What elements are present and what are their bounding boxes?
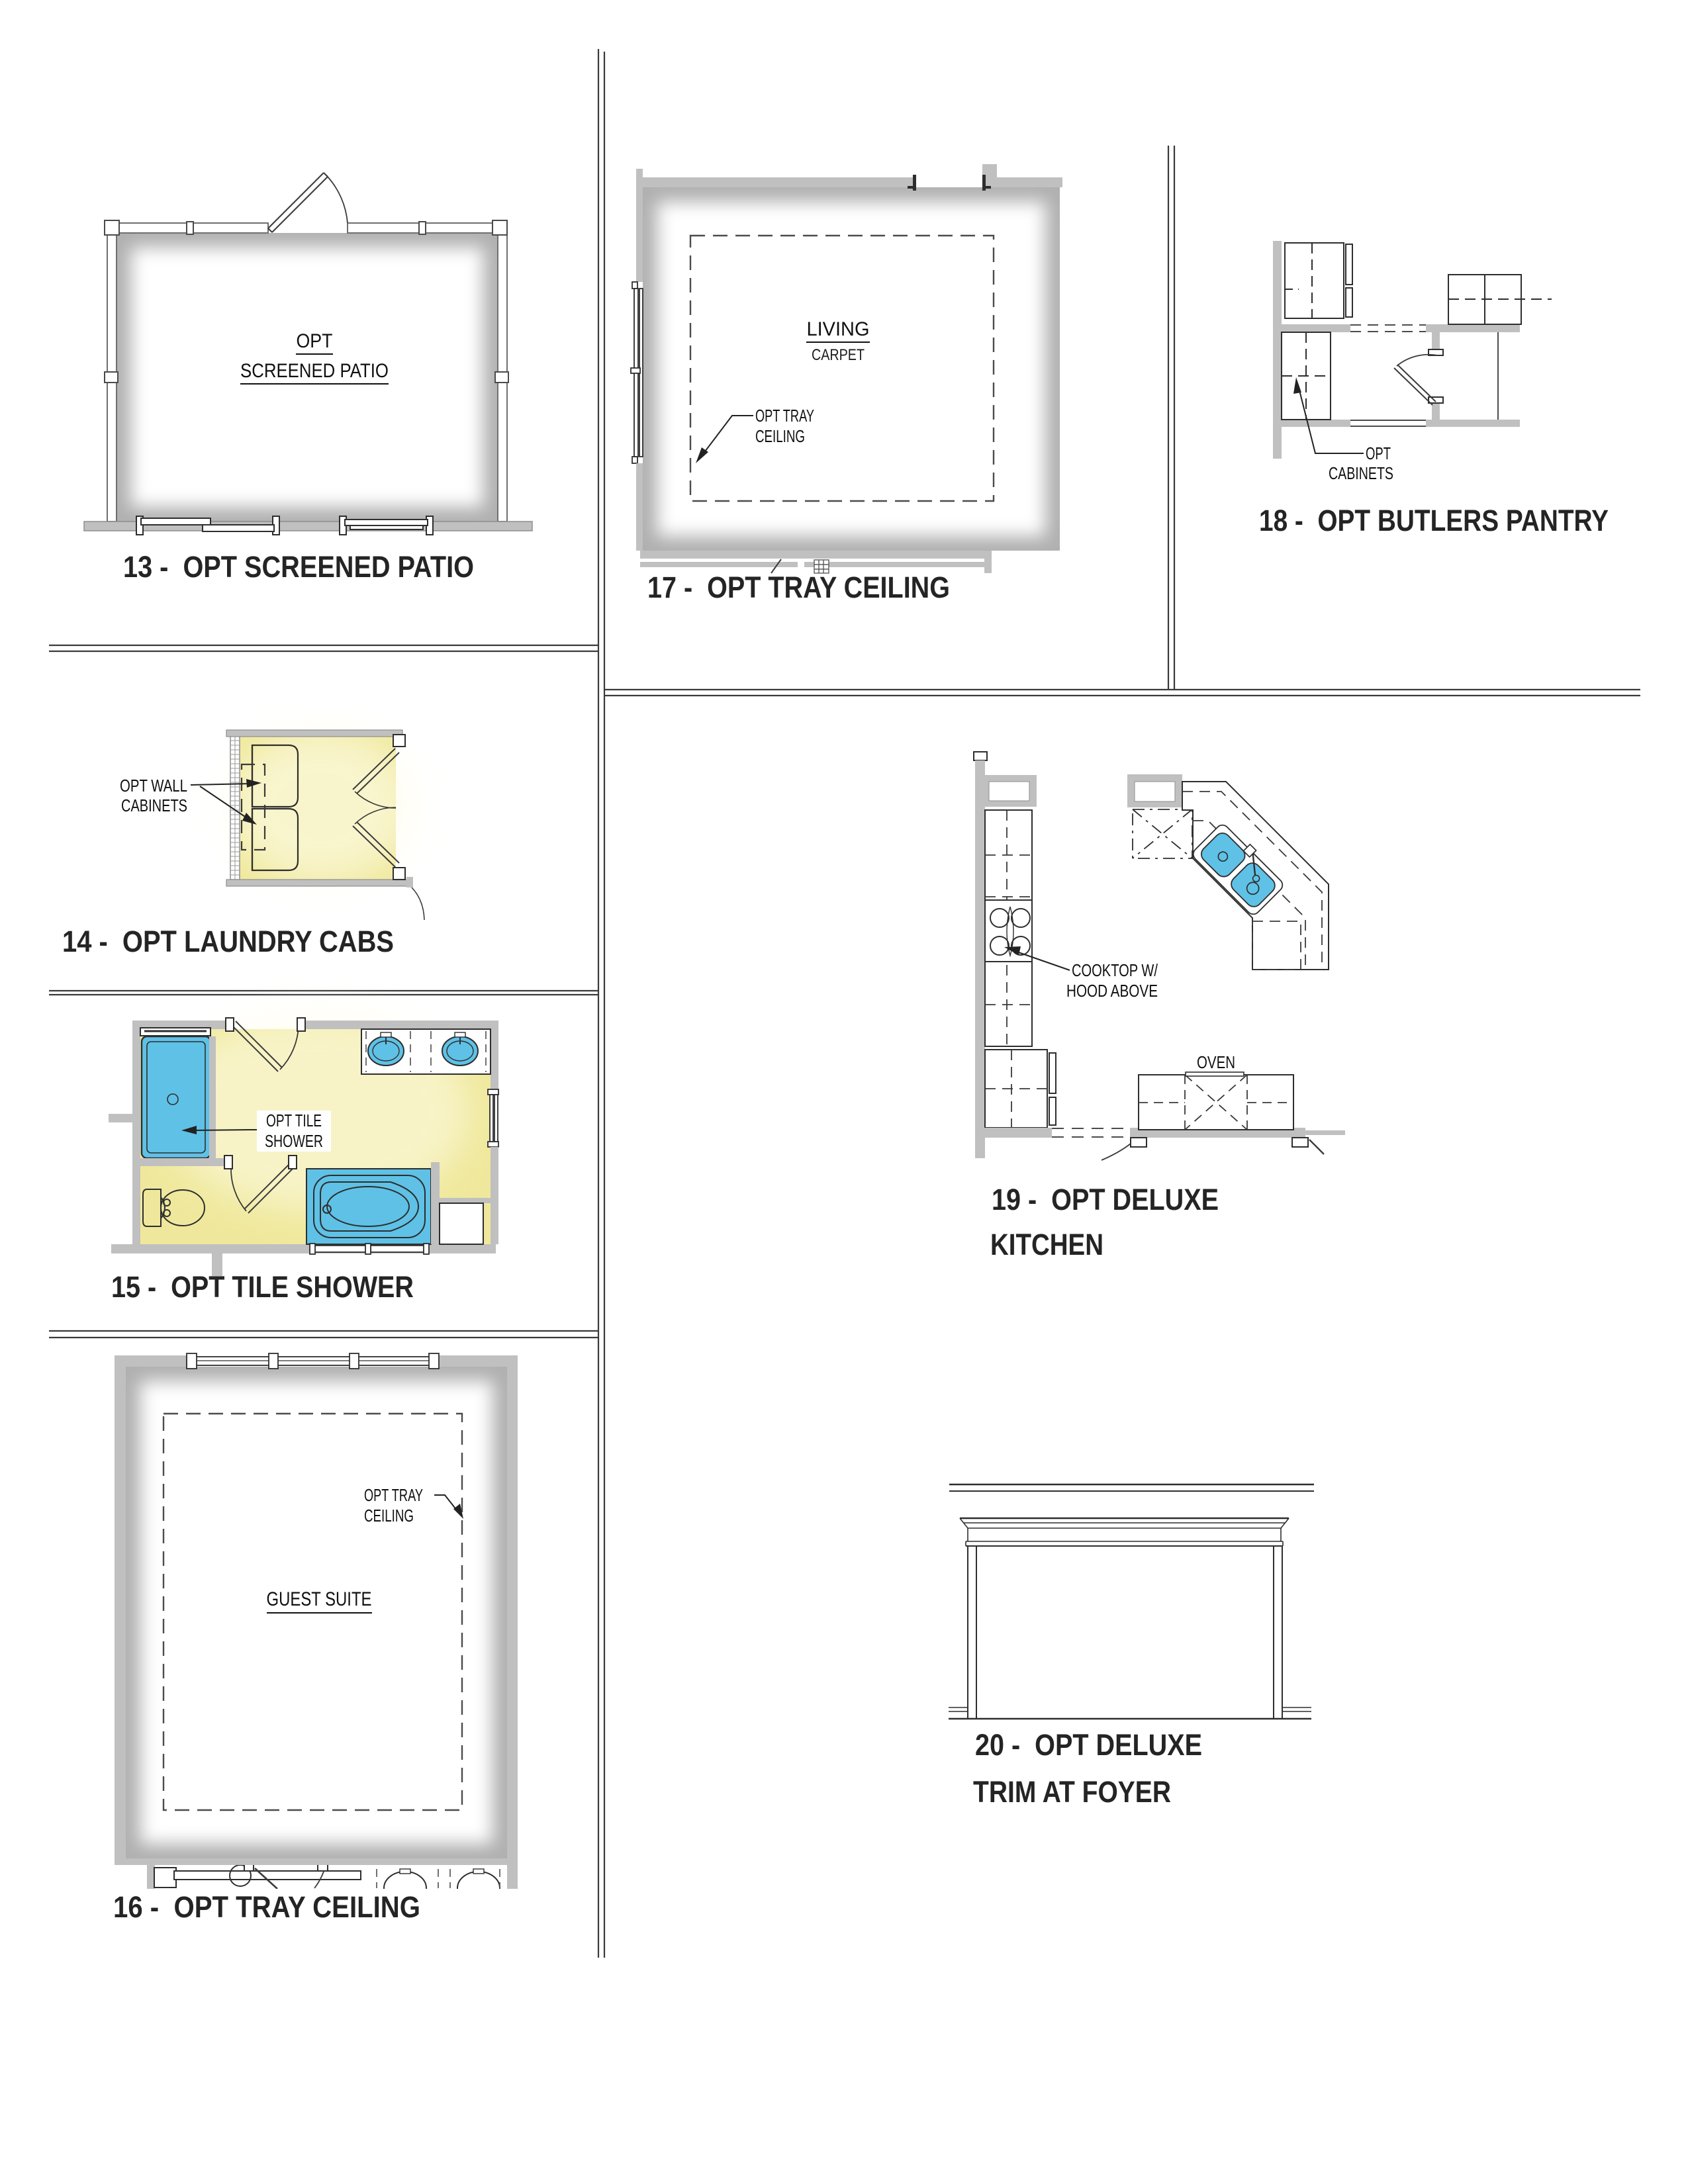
svg-text:OPT: OPT [1366,443,1391,463]
svg-text:OPT: OPT [297,330,333,352]
svg-text:OPT TILE: OPT TILE [266,1111,322,1130]
svg-text:LIVING: LIVING [807,318,870,340]
svg-text:CARPET: CARPET [812,346,865,364]
svg-text:OPT TRAY: OPT TRAY [755,406,814,426]
svg-text:13 - OPT SCREENED PATIO: 13 - OPT SCREENED PATIO [123,550,474,584]
svg-text:15 - OPT TILE SHOWER: 15 - OPT TILE SHOWER [111,1270,414,1304]
svg-text:SHOWER: SHOWER [265,1131,323,1151]
svg-text:CABINETS: CABINETS [121,796,187,815]
svg-text:CABINETS: CABINETS [1329,463,1393,483]
svg-text:OPT TRAY: OPT TRAY [364,1485,423,1505]
svg-text:CEILING: CEILING [364,1506,414,1525]
svg-text:TRIM AT FOYER: TRIM AT FOYER [973,1775,1171,1809]
svg-text:OPT WALL: OPT WALL [120,776,187,796]
svg-text:20 - OPT DELUXE: 20 - OPT DELUXE [975,1728,1202,1762]
svg-text:14 - OPT LAUNDRY CABS: 14 - OPT LAUNDRY CABS [62,925,394,958]
svg-text:17 - OPT TRAY CEILING: 17 - OPT TRAY CEILING [647,570,950,604]
svg-text:HOOD ABOVE: HOOD ABOVE [1066,981,1158,1001]
svg-text:COOKTOP W/: COOKTOP W/ [1072,960,1158,980]
svg-text:16 - OPT TRAY CEILING: 16 - OPT TRAY CEILING [113,1890,420,1924]
svg-text:18 - OPT BUTLERS PANTRY: 18 - OPT BUTLERS PANTRY [1259,504,1609,537]
svg-text:CEILING: CEILING [755,426,805,446]
svg-text:OVEN: OVEN [1197,1052,1235,1072]
svg-text:19 - OPT DELUXE: 19 - OPT DELUXE [992,1183,1219,1216]
svg-text:GUEST SUITE: GUEST SUITE [267,1588,372,1610]
svg-text:SCREENED PATIO: SCREENED PATIO [240,360,389,382]
svg-text:KITCHEN: KITCHEN [990,1228,1103,1261]
